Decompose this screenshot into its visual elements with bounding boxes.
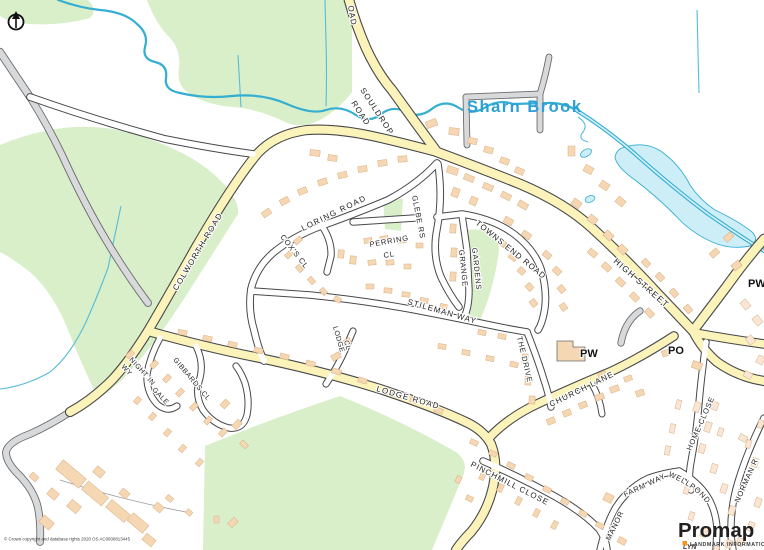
building	[669, 424, 676, 434]
building	[317, 178, 327, 186]
post-office-label: PO	[668, 345, 684, 357]
building	[384, 288, 392, 293]
building	[29, 472, 39, 482]
building	[562, 409, 572, 418]
road-track	[621, 311, 640, 343]
building	[368, 260, 376, 266]
building	[358, 165, 368, 172]
building	[482, 182, 494, 192]
building	[683, 304, 693, 314]
building	[307, 276, 315, 285]
building	[398, 156, 407, 163]
building	[738, 433, 748, 442]
building	[451, 248, 457, 257]
building	[629, 292, 640, 303]
place-of-worship-label: PW	[580, 348, 598, 360]
building	[446, 165, 459, 175]
building	[463, 173, 475, 182]
building	[550, 520, 558, 529]
building	[709, 248, 720, 258]
building	[148, 412, 156, 421]
building	[669, 288, 679, 298]
building	[710, 463, 718, 473]
promap-logo-text: Promap	[678, 519, 754, 542]
building	[67, 499, 82, 514]
building	[514, 166, 525, 175]
building	[438, 343, 447, 349]
brand-bullet-icon	[683, 541, 688, 546]
building	[469, 196, 478, 206]
green-area	[147, 0, 352, 125]
building	[450, 272, 456, 281]
building	[47, 488, 60, 501]
building	[163, 428, 171, 437]
building	[185, 509, 193, 517]
pond	[584, 194, 596, 203]
building	[740, 299, 751, 310]
building	[717, 427, 724, 436]
building	[754, 497, 762, 507]
building	[644, 308, 655, 319]
building	[338, 250, 345, 258]
building	[469, 439, 478, 447]
building	[220, 399, 230, 409]
building	[175, 388, 184, 397]
building	[559, 302, 568, 311]
building	[615, 196, 626, 207]
building	[106, 499, 131, 522]
building	[483, 146, 493, 154]
building	[486, 355, 495, 362]
building	[153, 502, 164, 513]
building	[532, 508, 540, 517]
building	[609, 385, 620, 394]
road-track	[0, 52, 30, 97]
building	[465, 495, 473, 502]
building	[451, 187, 461, 198]
pond	[579, 147, 593, 159]
building	[552, 266, 562, 276]
building	[498, 333, 507, 340]
building	[500, 191, 512, 201]
road-label: CL	[383, 249, 396, 260]
road-minor	[250, 163, 437, 361]
building	[603, 492, 615, 503]
building	[328, 154, 338, 161]
stream	[578, 117, 588, 142]
building	[557, 284, 566, 293]
map-frame: OADSOULDROPROADCOLWORTH ROADLORING ROADC…	[0, 0, 764, 550]
building	[127, 513, 149, 534]
copyright-text: © Crown copyright and database rights 20…	[4, 537, 131, 542]
building	[462, 349, 471, 355]
building	[623, 375, 632, 382]
building	[615, 277, 626, 288]
road-minor	[435, 164, 459, 307]
building	[756, 355, 764, 365]
building	[425, 118, 438, 128]
building	[514, 496, 522, 505]
building	[655, 272, 665, 282]
building	[404, 264, 411, 269]
building	[350, 256, 357, 264]
building	[525, 282, 534, 291]
building	[529, 298, 538, 307]
building	[195, 458, 203, 467]
brand-tagline: LANDMARK INFORMATION	[690, 542, 764, 548]
building	[601, 262, 612, 272]
building	[56, 460, 87, 488]
building	[499, 157, 510, 166]
building	[664, 446, 670, 456]
building	[478, 329, 487, 336]
building	[178, 444, 186, 453]
building	[529, 396, 535, 404]
building	[542, 250, 552, 260]
building	[583, 164, 594, 174]
promap-logo: Promap LANDMARK INFORMATION	[678, 519, 764, 548]
building	[165, 494, 174, 502]
map-green-layer	[0, 0, 499, 550]
water-name-label: Sharn Brook	[467, 98, 583, 116]
road-label: PERRING	[369, 233, 410, 249]
building	[635, 389, 644, 397]
building	[416, 243, 423, 248]
building	[698, 443, 706, 453]
building	[133, 396, 141, 405]
building	[510, 361, 519, 368]
building	[617, 536, 627, 545]
road-label: LODGE ROAD	[375, 384, 440, 411]
building	[214, 516, 219, 523]
building	[578, 401, 588, 409]
building	[720, 483, 728, 493]
building	[546, 417, 556, 426]
building	[587, 248, 598, 258]
building	[752, 315, 763, 326]
building	[517, 266, 526, 275]
road-track	[466, 94, 540, 97]
stream	[697, 10, 699, 93]
building	[599, 180, 610, 191]
building	[310, 150, 320, 157]
road-label: FARM WAY	[622, 471, 667, 498]
building	[675, 400, 682, 410]
building	[450, 224, 456, 233]
building	[142, 533, 156, 547]
building	[366, 284, 374, 289]
building	[337, 171, 347, 179]
building	[641, 258, 651, 268]
building	[279, 196, 290, 206]
map-canvas[interactable]: OADSOULDROPROADCOLWORTH ROADLORING ROADC…	[0, 0, 764, 550]
building	[162, 374, 171, 383]
building	[378, 159, 388, 166]
building	[386, 260, 394, 266]
road-label: LODGE	[331, 326, 345, 354]
building	[449, 128, 460, 136]
building	[297, 187, 308, 196]
building	[568, 146, 575, 156]
building	[93, 466, 106, 479]
place-of-worship-label-2: PW	[748, 278, 764, 290]
building	[517, 200, 529, 210]
building	[261, 208, 272, 218]
road-casing	[250, 163, 437, 361]
